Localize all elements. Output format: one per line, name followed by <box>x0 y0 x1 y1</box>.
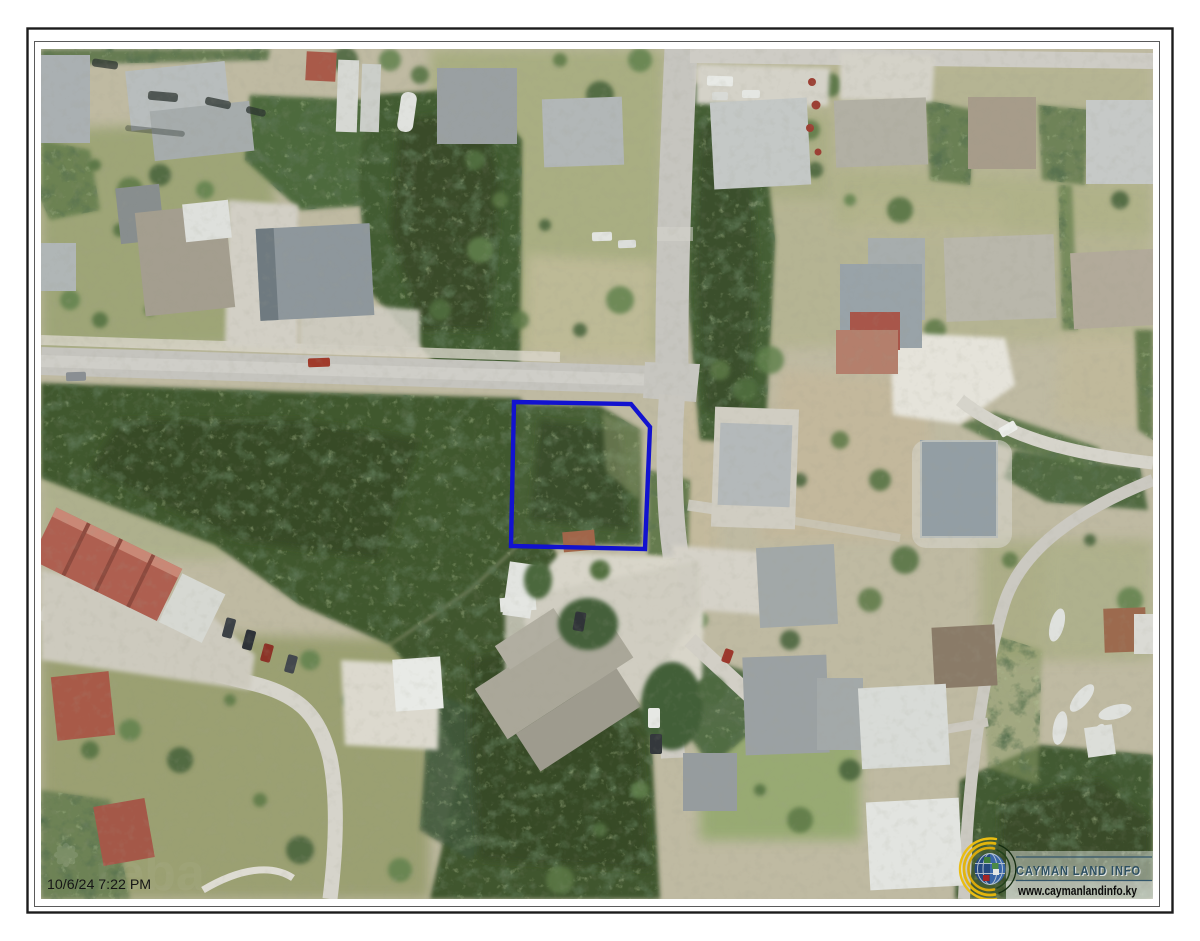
svg-text:10/6/24 7:22 PM: 10/6/24 7:22 PM <box>47 877 151 893</box>
svg-text:reba: reba <box>95 844 206 902</box>
svg-text:CAYMAN LAND INFO: CAYMAN LAND INFO <box>1016 864 1141 878</box>
svg-text:www.caymanlandinfo.ky: www.caymanlandinfo.ky <box>1017 883 1137 898</box>
